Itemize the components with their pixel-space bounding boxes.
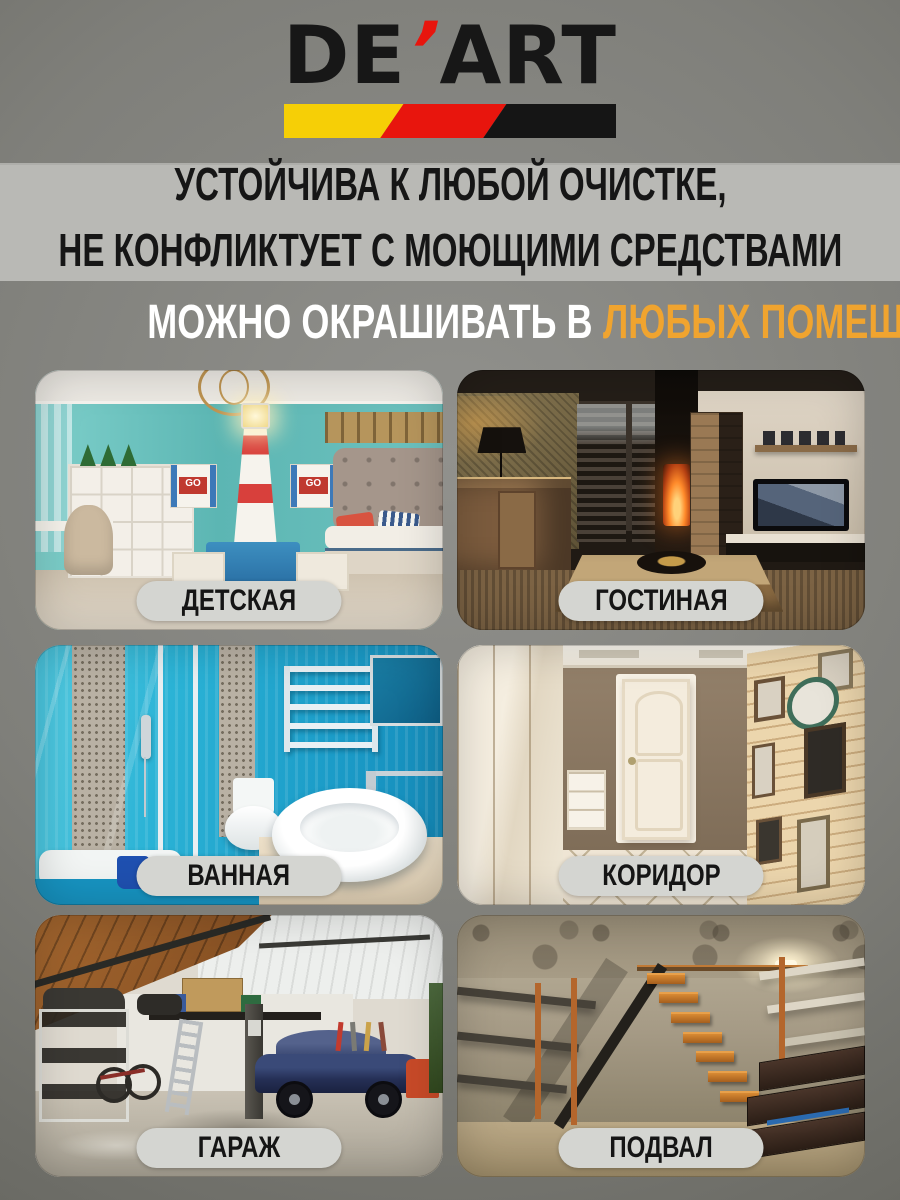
- subheadline-white-text: МОЖНО ОКРАШИВАТЬ В: [147, 296, 592, 349]
- room-card-bath: ВАННАЯ: [35, 645, 443, 905]
- table-lamp: [477, 427, 526, 453]
- window-blinds: [577, 404, 626, 542]
- headline-line-1: УСТОЙЧИВА К ЛЮБОЙ ОЧИСТКЕ,: [67, 157, 834, 223]
- subheadline-orange-text: ЛЮБЫХ ПОМЕЩЕНИЯХ: [603, 296, 900, 349]
- room-label-badge: ГАРАЖ: [137, 1128, 342, 1168]
- room-label: ДЕТСКАЯ: [182, 585, 296, 617]
- brand-logo-right: ART: [439, 9, 617, 102]
- room-label-badge: ДЕТСКАЯ: [137, 581, 342, 621]
- room-label-badge: ПОДВАЛ: [559, 1128, 764, 1168]
- bunk-bed-rail: [325, 412, 443, 443]
- brand-logo: DE’ART: [0, 12, 900, 138]
- picture-frame: [803, 722, 846, 799]
- decor-bowl: [637, 551, 706, 574]
- chair: [64, 505, 113, 575]
- room-card-garage: ГАРАЖ: [35, 915, 443, 1177]
- picture-frame: [754, 675, 785, 722]
- headline-line-2: НЕ КОНФЛИКТУЕТ С МОЮЩИМИ СРЕДСТВАМИ: [0, 223, 900, 289]
- brick-wall: [747, 645, 865, 905]
- room-label-badge: ГОСТИНАЯ: [559, 581, 764, 621]
- go-box: GO: [170, 464, 217, 508]
- towel-rail: [284, 666, 378, 752]
- wall-shelf: [755, 445, 857, 452]
- go-box-label: GO: [299, 477, 328, 494]
- shower-handset: [141, 715, 151, 759]
- fireplace-fire: [663, 464, 691, 526]
- picture-frame: [756, 816, 782, 865]
- storage-shelves: [39, 1009, 129, 1122]
- subheadline: МОЖНО ОКРАШИВАТЬ ВЛЮБЫХ ПОМЕЩЕНИЯХ: [0, 297, 900, 360]
- lighthouse-lantern: [241, 403, 270, 429]
- promo-poster: DE’ART УСТОЙЧИВА К ЛЮБОЙ ОЧИСТКЕ, НЕ КОН…: [0, 0, 900, 1200]
- brand-logo-wordmark: DE’ART: [0, 12, 900, 100]
- sideboard: [457, 477, 571, 571]
- tv-screen: [753, 479, 849, 531]
- brand-logo-left: DE: [283, 9, 406, 102]
- room-label: ПОДВАЛ: [609, 1132, 712, 1164]
- picture-frame: [796, 814, 829, 892]
- picture-frame: [751, 742, 775, 799]
- go-box: GO: [290, 464, 337, 508]
- room-card-corridor: КОРИДОР: [457, 645, 865, 905]
- headline-band: УСТОЙЧИВА К ЛЮБОЙ ОЧИСТКЕ, НЕ КОНФЛИКТУЕ…: [0, 163, 900, 281]
- drawer-cabinet: [567, 770, 606, 830]
- mirror: [370, 655, 443, 725]
- go-box-label: GO: [179, 477, 208, 494]
- room-label-badge: ВАННАЯ: [137, 856, 342, 896]
- room-label: ГОСТИНАЯ: [595, 585, 728, 617]
- wall-faucet: [370, 771, 443, 776]
- brand-stripe: [284, 104, 616, 138]
- room-label: КОРИДОР: [602, 860, 720, 892]
- room-label: ГАРАЖ: [198, 1132, 280, 1164]
- room-label-badge: КОРИДОР: [559, 856, 764, 896]
- room-card-kids: GO GO ДЕТСКАЯ: [35, 370, 443, 630]
- room-card-living: ГОСТИНАЯ: [457, 370, 865, 630]
- room-label: ВАННАЯ: [188, 860, 291, 892]
- room-card-basement: ПОДВАЛ: [457, 915, 865, 1177]
- mirrored-wardrobe: [457, 645, 563, 905]
